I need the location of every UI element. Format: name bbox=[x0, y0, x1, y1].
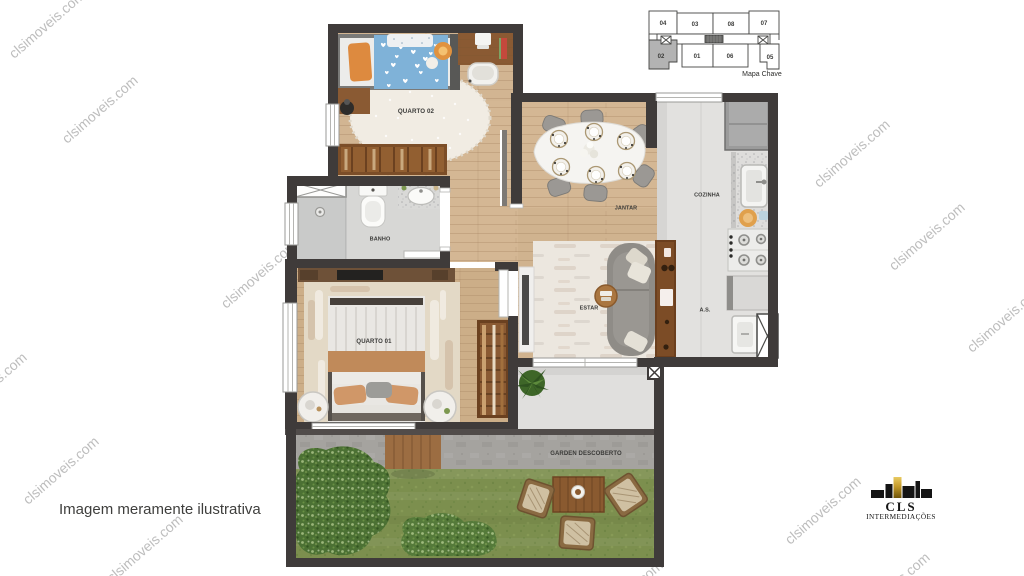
svg-text:COZINHA: COZINHA bbox=[694, 193, 720, 199]
svg-text:04: 04 bbox=[660, 21, 667, 27]
svg-text:01: 01 bbox=[694, 54, 701, 60]
svg-text:ESTAR: ESTAR bbox=[580, 306, 599, 312]
svg-text:QUARTO 01: QUARTO 01 bbox=[356, 339, 392, 345]
svg-text:07: 07 bbox=[761, 21, 768, 27]
svg-text:QUARTO 02: QUARTO 02 bbox=[398, 108, 435, 115]
svg-text:08: 08 bbox=[728, 22, 735, 28]
svg-text:BANHO: BANHO bbox=[370, 237, 391, 243]
svg-text:Imagem meramente ilustrativa: Imagem meramente ilustrativa bbox=[59, 501, 261, 518]
svg-text:Mapa Chave: Mapa Chave bbox=[742, 71, 782, 78]
svg-text:JANTAR: JANTAR bbox=[615, 206, 638, 212]
svg-text:GARDEN DESCOBERTO: GARDEN DESCOBERTO bbox=[550, 451, 622, 457]
svg-text:03: 03 bbox=[692, 22, 699, 28]
svg-text:INTERMEDIAÇÕES: INTERMEDIAÇÕES bbox=[866, 511, 936, 521]
svg-text:06: 06 bbox=[727, 54, 734, 60]
svg-text:A.S.: A.S. bbox=[699, 308, 710, 314]
svg-text:02: 02 bbox=[658, 54, 665, 60]
svg-text:05: 05 bbox=[767, 55, 774, 61]
